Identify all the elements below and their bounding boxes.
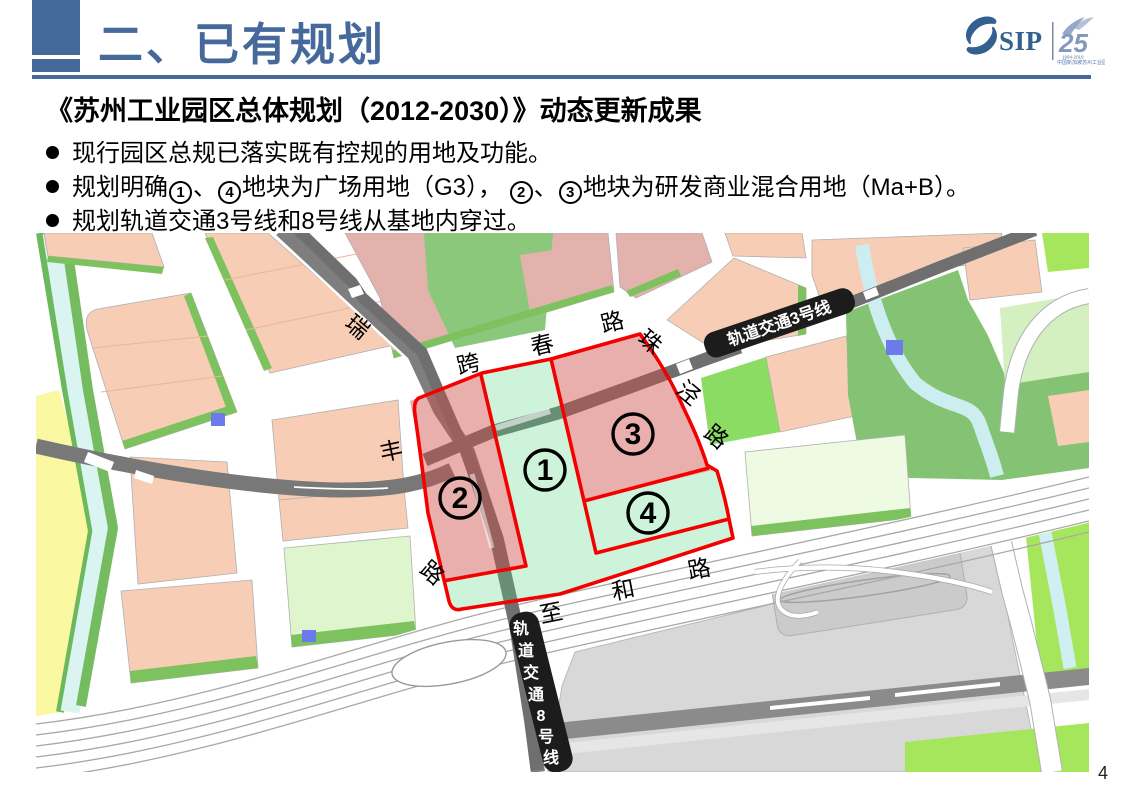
svg-text:轨: 轨 (513, 619, 529, 638)
svg-text:线: 线 (543, 748, 559, 767)
svg-text:4: 4 (640, 497, 657, 530)
svg-text:1: 1 (537, 454, 554, 487)
svg-text:通: 通 (528, 686, 544, 704)
svg-text:路: 路 (685, 554, 713, 584)
svg-text:至: 至 (537, 598, 565, 628)
svg-text:2: 2 (452, 482, 469, 515)
svg-text:道: 道 (518, 641, 534, 660)
svg-text:交: 交 (523, 663, 539, 682)
svg-text:号: 号 (538, 728, 554, 746)
svg-text:和: 和 (609, 575, 637, 605)
svg-text:3: 3 (625, 418, 642, 451)
svg-text:8: 8 (537, 708, 546, 725)
